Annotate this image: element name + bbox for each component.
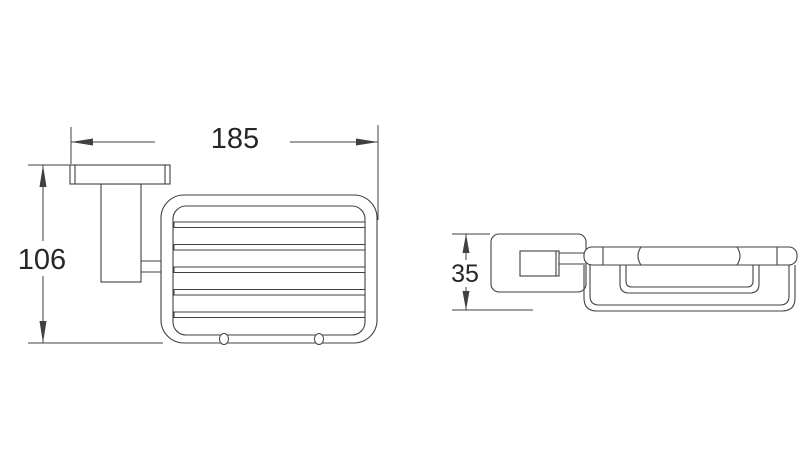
- basket-slat: [174, 245, 365, 251]
- rail-loop-inner-outline: [626, 265, 753, 287]
- basket-outer-loop-side: [584, 265, 795, 311]
- arrowhead-up-icon: [463, 234, 470, 253]
- basket-slat: [174, 222, 365, 228]
- basket-rim-side: [584, 247, 797, 265]
- dimension-depth-label: 35: [451, 260, 479, 288]
- arrowhead-up-icon: [40, 165, 47, 187]
- mount-post-front: [101, 184, 141, 282]
- wall-plate-front: [70, 165, 170, 184]
- mount-block-side: [520, 251, 559, 276]
- dimension-height-label: 106: [18, 244, 66, 276]
- basket-slat: [174, 290, 365, 296]
- arrowhead-down-icon: [40, 321, 47, 343]
- technical-drawing: 106 185: [0, 0, 800, 465]
- basket-slat: [174, 267, 365, 273]
- basket-foot-right: [315, 334, 324, 345]
- side-view: 35: [451, 234, 797, 311]
- basket-foot-left: [220, 334, 229, 345]
- outer-loop-outline: [584, 265, 795, 311]
- arrowhead-left-icon: [71, 139, 93, 146]
- basket-slat: [174, 312, 365, 318]
- arrowhead-down-icon: [463, 291, 470, 310]
- front-view: 106 185: [18, 123, 378, 345]
- arrowhead-right-icon: [356, 139, 378, 146]
- basket-bottom-rail-side: [620, 265, 759, 293]
- dimension-width-label: 185: [211, 123, 259, 155]
- drawing-canvas: 106 185: [0, 0, 800, 465]
- rail-loop-outline: [620, 265, 759, 293]
- support-arm-front: [141, 261, 162, 272]
